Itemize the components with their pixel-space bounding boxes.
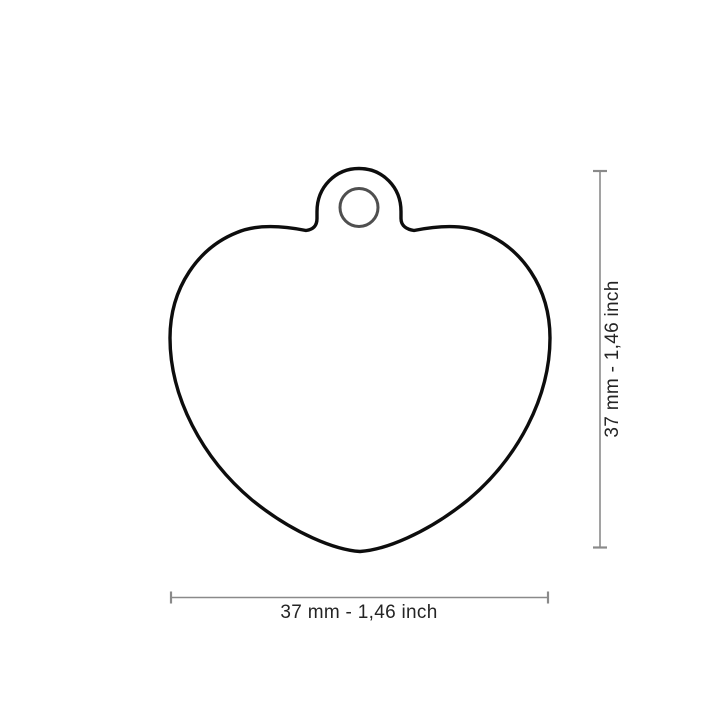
width-dimension: 37 mm - 1,46 inch (171, 592, 548, 624)
drawing-canvas: 37 mm - 1,46 inch 37 mm - 1,46 inch (0, 0, 720, 720)
width-dimension-label: 37 mm - 1,46 inch (280, 602, 437, 623)
tag-dimension-drawing: 37 mm - 1,46 inch 37 mm - 1,46 inch (0, 0, 720, 720)
height-dimension-label: 37 mm - 1,46 inch (602, 280, 623, 437)
height-dimension: 37 mm - 1,46 inch (593, 171, 623, 548)
